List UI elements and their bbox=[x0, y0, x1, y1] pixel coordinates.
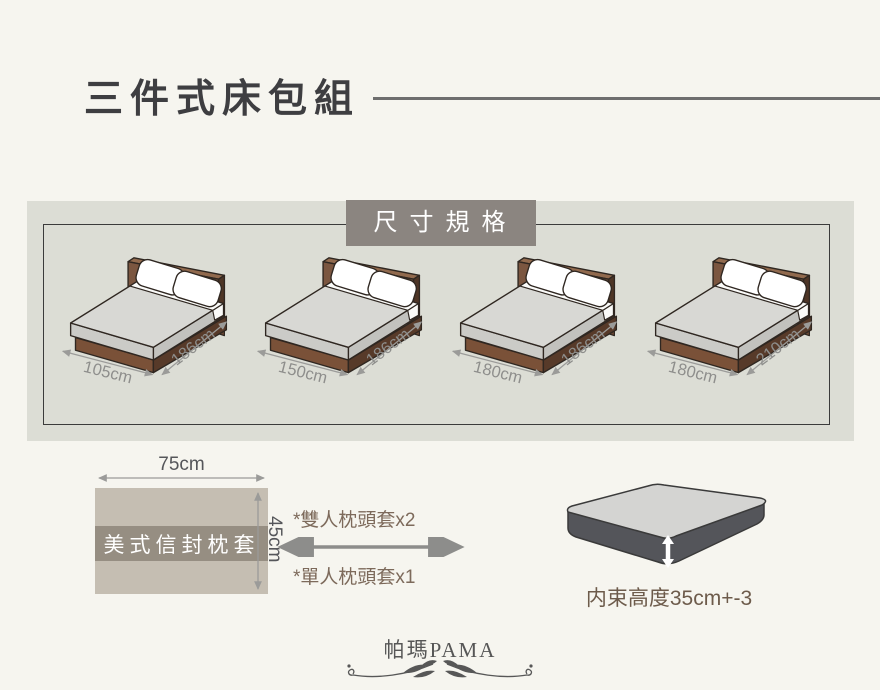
page-title: 三件式床包組 bbox=[84, 68, 360, 124]
bed-king-illustration: 180cm 210cm bbox=[636, 250, 831, 396]
flourish-ornament-icon bbox=[345, 658, 535, 684]
size-spec-infographic: { "header": { "title": "三件式床包組" }, "spec… bbox=[0, 0, 880, 690]
note-double-pillowcase: *雙人枕頭套x2 bbox=[293, 505, 415, 532]
mattress-height-label: 内束高度35cm+-3 bbox=[558, 582, 780, 612]
pillow-width-arrow bbox=[95, 471, 268, 485]
pillowcase-diagram: 美式信封枕套 bbox=[95, 488, 268, 594]
mattress-illustration bbox=[558, 474, 780, 574]
bed-single-illustration: 105cm 186cm bbox=[51, 250, 246, 396]
bed-queen-illustration: 180cm 186cm bbox=[441, 250, 636, 396]
notes-double-arrow bbox=[277, 537, 465, 557]
note-single-pillowcase: *單人枕頭套x1 bbox=[293, 562, 415, 589]
title-rule bbox=[373, 97, 880, 100]
beds-row: 105cm 186cm 150cm 186cm 180cm 186cm 180c… bbox=[27, 250, 854, 396]
spec-badge: 尺寸規格 bbox=[346, 200, 536, 246]
bed-double-illustration: 150cm 186cm bbox=[246, 250, 441, 396]
size-spec-panel: 尺寸規格 105cm 186cm 150cm 186cm 180cm 186cm… bbox=[27, 201, 854, 441]
pillowcase-name-band: 美式信封枕套 bbox=[95, 526, 268, 561]
